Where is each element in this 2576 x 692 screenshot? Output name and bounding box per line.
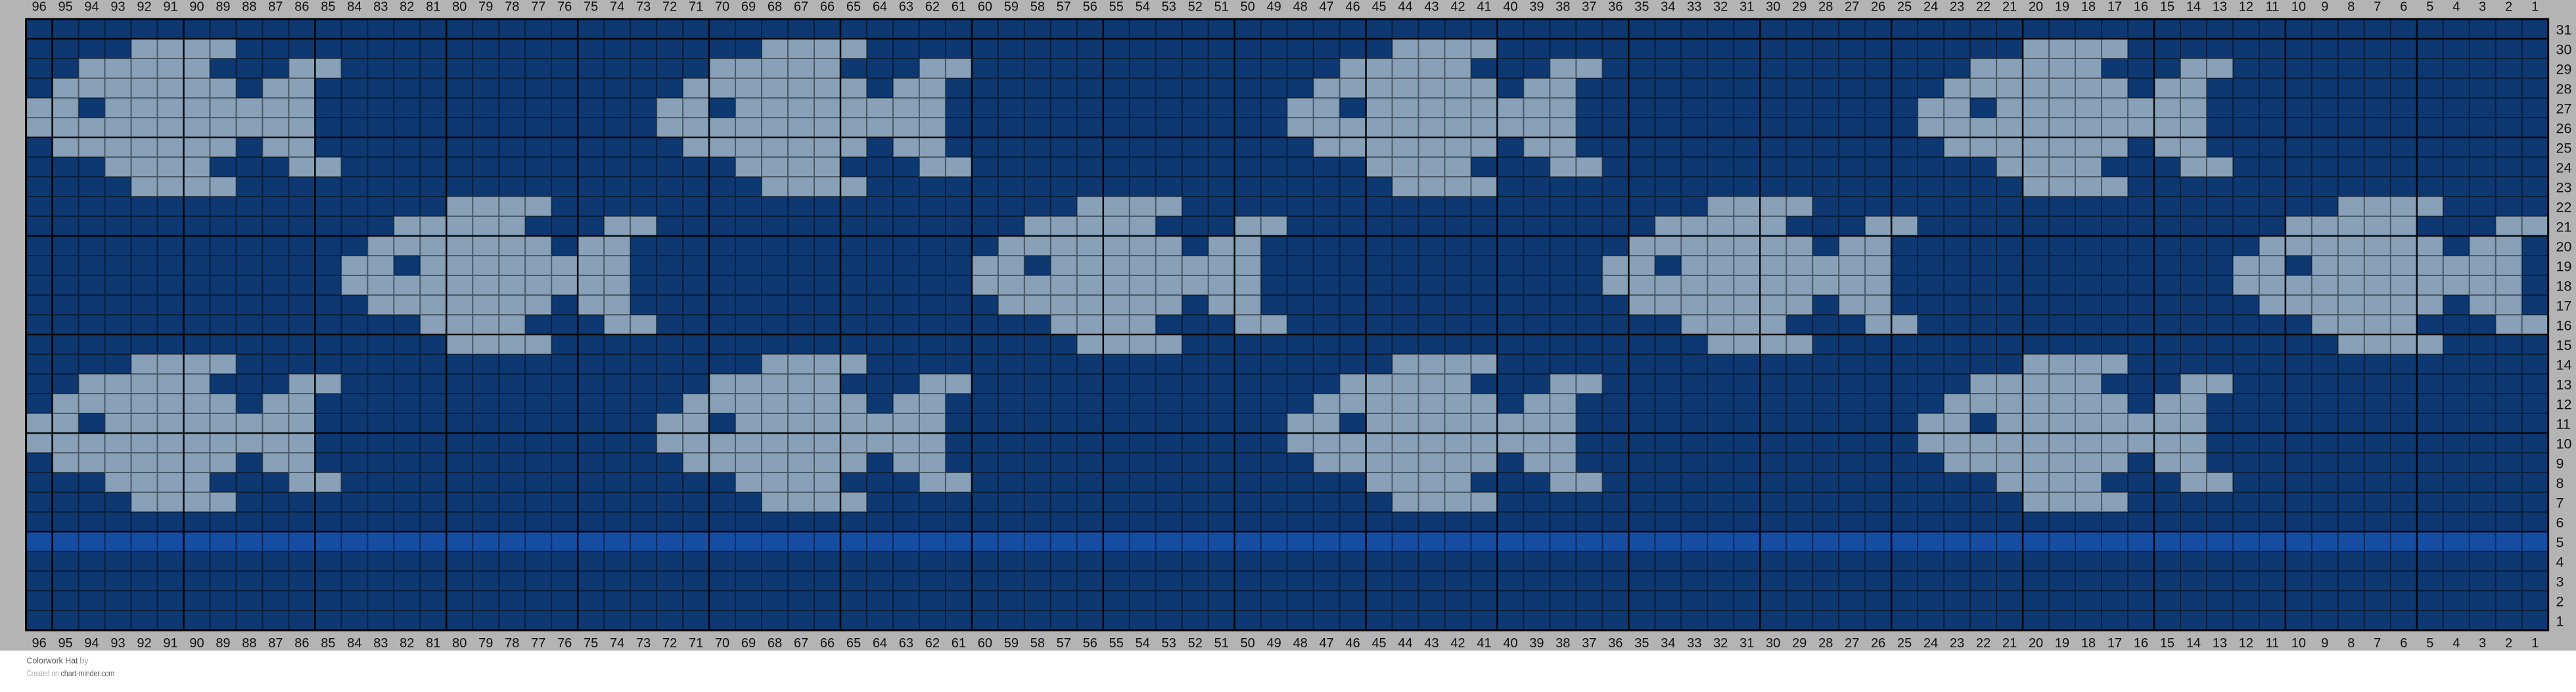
svg-text:33: 33 — [1687, 636, 1701, 651]
svg-text:28: 28 — [2556, 81, 2572, 97]
svg-text:56: 56 — [1083, 636, 1097, 651]
svg-text:59: 59 — [1004, 0, 1019, 14]
svg-text:42: 42 — [1450, 0, 1465, 14]
svg-text:22: 22 — [2556, 200, 2572, 216]
svg-text:39: 39 — [1529, 0, 1544, 14]
svg-text:69: 69 — [741, 636, 756, 651]
svg-text:22: 22 — [1976, 0, 1990, 14]
svg-text:85: 85 — [321, 636, 335, 651]
svg-text:Colorwork Hat: Colorwork Hat — [27, 656, 78, 665]
svg-text:81: 81 — [426, 636, 440, 651]
svg-text:78: 78 — [505, 636, 519, 651]
svg-text:29: 29 — [1792, 0, 1806, 14]
svg-text:24: 24 — [2556, 160, 2572, 176]
svg-text:12: 12 — [2556, 397, 2572, 413]
svg-text:17: 17 — [2107, 0, 2122, 14]
svg-text:21: 21 — [2002, 0, 2017, 14]
svg-text:22: 22 — [1976, 636, 1990, 651]
svg-text:51: 51 — [1214, 0, 1229, 14]
svg-text:19: 19 — [2055, 0, 2069, 14]
svg-text:28: 28 — [1818, 0, 1833, 14]
svg-text:51: 51 — [1214, 636, 1229, 651]
svg-text:55: 55 — [1109, 636, 1124, 651]
svg-text:75: 75 — [584, 0, 598, 14]
svg-text:12: 12 — [2239, 636, 2253, 651]
svg-text:82: 82 — [400, 636, 414, 651]
svg-text:34: 34 — [1661, 0, 1675, 14]
svg-text:61: 61 — [952, 0, 966, 14]
svg-text:9: 9 — [2321, 0, 2328, 14]
svg-text:23: 23 — [2556, 180, 2572, 196]
svg-text:6: 6 — [2556, 515, 2564, 531]
svg-text:35: 35 — [1634, 0, 1649, 14]
svg-text:1: 1 — [2556, 614, 2564, 630]
svg-text:50: 50 — [1241, 636, 1255, 651]
svg-text:18: 18 — [2081, 0, 2096, 14]
svg-text:40: 40 — [1503, 636, 1517, 651]
svg-text:43: 43 — [1424, 636, 1438, 651]
svg-text:7: 7 — [2374, 636, 2381, 651]
svg-text:35: 35 — [1634, 636, 1649, 651]
svg-text:64: 64 — [873, 636, 887, 651]
svg-text:92: 92 — [137, 636, 151, 651]
svg-text:93: 93 — [110, 0, 125, 14]
svg-text:14: 14 — [2186, 0, 2201, 14]
svg-text:15: 15 — [2160, 0, 2174, 14]
svg-text:57: 57 — [1057, 636, 1071, 651]
svg-text:16: 16 — [2556, 318, 2572, 334]
svg-text:Created on: Created on — [27, 669, 59, 678]
svg-text:93: 93 — [110, 636, 125, 651]
svg-text:38: 38 — [1555, 636, 1570, 651]
svg-text:27: 27 — [2556, 101, 2572, 117]
svg-text:76: 76 — [557, 0, 572, 14]
svg-text:21: 21 — [2002, 636, 2017, 651]
svg-text:11: 11 — [2266, 636, 2280, 651]
svg-text:26: 26 — [1871, 636, 1885, 651]
svg-text:46: 46 — [1345, 636, 1360, 651]
svg-text:66: 66 — [820, 636, 835, 651]
svg-text:8: 8 — [2347, 636, 2355, 651]
svg-text:13: 13 — [2213, 0, 2227, 14]
svg-text:26: 26 — [1871, 0, 1885, 14]
svg-text:48: 48 — [1293, 0, 1308, 14]
svg-text:52: 52 — [1188, 0, 1203, 14]
svg-text:87: 87 — [268, 636, 283, 651]
svg-text:10: 10 — [2556, 436, 2572, 452]
svg-text:7: 7 — [2374, 0, 2381, 14]
svg-text:11: 11 — [2556, 417, 2571, 432]
svg-text:49: 49 — [1267, 0, 1281, 14]
svg-text:25: 25 — [2556, 141, 2572, 156]
svg-text:18: 18 — [2556, 279, 2572, 294]
svg-text:49: 49 — [1267, 636, 1281, 651]
svg-text:21: 21 — [2556, 219, 2572, 235]
svg-text:9: 9 — [2321, 636, 2328, 651]
svg-text:54: 54 — [1136, 0, 1150, 14]
svg-text:59: 59 — [1004, 636, 1019, 651]
svg-text:14: 14 — [2186, 636, 2201, 651]
svg-text:23: 23 — [1950, 636, 1964, 651]
svg-text:80: 80 — [452, 0, 467, 14]
svg-text:84: 84 — [347, 636, 361, 651]
svg-text:6: 6 — [2400, 0, 2407, 14]
svg-text:2: 2 — [2505, 636, 2512, 651]
svg-text:5: 5 — [2556, 535, 2564, 551]
svg-text:30: 30 — [2556, 42, 2572, 58]
svg-text:71: 71 — [689, 636, 703, 651]
svg-text:36: 36 — [1608, 0, 1622, 14]
svg-text:73: 73 — [636, 0, 651, 14]
svg-text:1: 1 — [2531, 636, 2539, 651]
svg-text:94: 94 — [84, 636, 99, 651]
svg-text:8: 8 — [2347, 0, 2355, 14]
svg-text:43: 43 — [1424, 0, 1438, 14]
svg-text:30: 30 — [1766, 0, 1780, 14]
svg-text:2: 2 — [2505, 0, 2512, 14]
svg-text:79: 79 — [478, 636, 493, 651]
svg-text:23: 23 — [1950, 0, 1964, 14]
svg-text:30: 30 — [1766, 636, 1780, 651]
svg-text:46: 46 — [1345, 0, 1360, 14]
svg-text:62: 62 — [925, 636, 940, 651]
svg-text:44: 44 — [1398, 636, 1412, 651]
svg-text:74: 74 — [610, 0, 624, 14]
svg-text:20: 20 — [2029, 0, 2043, 14]
svg-text:87: 87 — [268, 0, 283, 14]
svg-text:25: 25 — [1897, 0, 1912, 14]
svg-text:42: 42 — [1450, 636, 1465, 651]
svg-text:3: 3 — [2479, 636, 2486, 651]
svg-text:83: 83 — [373, 636, 388, 651]
svg-text:73: 73 — [636, 636, 651, 651]
svg-text:47: 47 — [1319, 0, 1333, 14]
svg-text:91: 91 — [163, 636, 177, 651]
svg-text:55: 55 — [1109, 0, 1124, 14]
svg-text:76: 76 — [557, 636, 572, 651]
svg-text:67: 67 — [794, 0, 808, 14]
svg-text:68: 68 — [768, 0, 782, 14]
svg-text:18: 18 — [2081, 636, 2096, 651]
svg-text:86: 86 — [294, 0, 309, 14]
svg-text:96: 96 — [32, 0, 46, 14]
svg-text:89: 89 — [216, 636, 230, 651]
svg-text:17: 17 — [2107, 636, 2122, 651]
svg-text:19: 19 — [2055, 636, 2069, 651]
svg-text:75: 75 — [584, 636, 598, 651]
svg-text:7: 7 — [2556, 496, 2564, 511]
svg-text:12: 12 — [2239, 0, 2253, 14]
svg-text:84: 84 — [347, 0, 361, 14]
svg-text:45: 45 — [1371, 636, 1386, 651]
svg-text:37: 37 — [1582, 0, 1596, 14]
svg-text:89: 89 — [216, 0, 230, 14]
svg-text:10: 10 — [2291, 636, 2306, 651]
svg-text:81: 81 — [426, 0, 440, 14]
svg-text:79: 79 — [478, 0, 493, 14]
svg-text:77: 77 — [531, 636, 545, 651]
svg-text:11: 11 — [2266, 0, 2280, 14]
svg-text:29: 29 — [2556, 62, 2572, 78]
svg-text:20: 20 — [2556, 239, 2572, 255]
svg-text:36: 36 — [1608, 636, 1622, 651]
svg-text:8: 8 — [2556, 476, 2564, 492]
svg-text:32: 32 — [1713, 0, 1728, 14]
svg-text:45: 45 — [1371, 0, 1386, 14]
svg-text:88: 88 — [242, 0, 256, 14]
svg-text:66: 66 — [820, 0, 835, 14]
svg-text:72: 72 — [662, 0, 677, 14]
svg-text:2: 2 — [2556, 594, 2564, 610]
svg-text:78: 78 — [505, 0, 519, 14]
svg-text:13: 13 — [2213, 636, 2227, 651]
svg-text:9: 9 — [2556, 456, 2564, 472]
svg-text:74: 74 — [610, 636, 624, 651]
svg-text:48: 48 — [1293, 636, 1308, 651]
svg-text:34: 34 — [1661, 636, 1675, 651]
svg-text:72: 72 — [662, 636, 677, 651]
svg-text:71: 71 — [689, 0, 703, 14]
svg-text:58: 58 — [1030, 636, 1045, 651]
svg-text:95: 95 — [58, 636, 72, 651]
svg-text:65: 65 — [846, 636, 861, 651]
svg-text:10: 10 — [2291, 0, 2306, 14]
svg-text:60: 60 — [978, 636, 992, 651]
svg-text:65: 65 — [846, 0, 861, 14]
svg-text:63: 63 — [899, 0, 913, 14]
svg-text:53: 53 — [1162, 636, 1176, 651]
svg-text:77: 77 — [531, 0, 545, 14]
svg-text:4: 4 — [2452, 636, 2460, 651]
svg-text:63: 63 — [899, 636, 913, 651]
svg-text:96: 96 — [32, 636, 46, 651]
svg-text:41: 41 — [1477, 0, 1491, 14]
svg-text:64: 64 — [873, 0, 887, 14]
svg-text:60: 60 — [978, 0, 992, 14]
svg-text:15: 15 — [2160, 636, 2174, 651]
svg-text:83: 83 — [373, 0, 388, 14]
svg-text:4: 4 — [2452, 0, 2460, 14]
svg-text:58: 58 — [1030, 0, 1045, 14]
svg-text:by: by — [80, 656, 89, 665]
svg-text:28: 28 — [1818, 636, 1833, 651]
svg-text:17: 17 — [2556, 298, 2572, 314]
svg-text:70: 70 — [715, 0, 729, 14]
svg-text:68: 68 — [768, 636, 782, 651]
svg-text:6: 6 — [2400, 636, 2407, 651]
svg-text:50: 50 — [1241, 0, 1255, 14]
svg-text:88: 88 — [242, 636, 256, 651]
svg-text:4: 4 — [2556, 555, 2564, 570]
svg-text:25: 25 — [1897, 636, 1912, 651]
svg-text:44: 44 — [1398, 0, 1412, 14]
svg-text:chart-minder.com: chart-minder.com — [61, 669, 115, 678]
svg-text:20: 20 — [2029, 636, 2043, 651]
svg-text:94: 94 — [84, 0, 99, 14]
svg-text:5: 5 — [2426, 636, 2433, 651]
svg-text:62: 62 — [925, 0, 940, 14]
svg-text:92: 92 — [137, 0, 151, 14]
svg-text:82: 82 — [400, 0, 414, 14]
svg-text:27: 27 — [1845, 0, 1859, 14]
svg-text:90: 90 — [189, 0, 204, 14]
svg-text:14: 14 — [2556, 358, 2572, 373]
svg-text:85: 85 — [321, 0, 335, 14]
svg-text:53: 53 — [1162, 0, 1176, 14]
svg-text:67: 67 — [794, 636, 808, 651]
svg-text:37: 37 — [1582, 636, 1596, 651]
svg-text:32: 32 — [1713, 636, 1728, 651]
svg-text:47: 47 — [1319, 636, 1333, 651]
svg-text:26: 26 — [2556, 121, 2572, 137]
svg-text:5: 5 — [2426, 0, 2433, 14]
svg-text:52: 52 — [1188, 636, 1203, 651]
svg-text:31: 31 — [1739, 636, 1754, 651]
svg-text:29: 29 — [1792, 636, 1806, 651]
svg-text:24: 24 — [1923, 636, 1938, 651]
svg-text:1: 1 — [2531, 0, 2539, 14]
svg-text:80: 80 — [452, 636, 467, 651]
svg-text:38: 38 — [1555, 0, 1570, 14]
svg-text:3: 3 — [2556, 574, 2564, 590]
svg-text:3: 3 — [2479, 0, 2486, 14]
svg-text:39: 39 — [1529, 636, 1544, 651]
svg-text:33: 33 — [1687, 0, 1701, 14]
svg-text:91: 91 — [163, 0, 177, 14]
svg-text:16: 16 — [2134, 0, 2148, 14]
svg-text:27: 27 — [1845, 636, 1859, 651]
svg-text:90: 90 — [189, 636, 204, 651]
svg-text:40: 40 — [1503, 0, 1517, 14]
svg-text:24: 24 — [1923, 0, 1938, 14]
svg-text:15: 15 — [2556, 338, 2572, 354]
svg-text:95: 95 — [58, 0, 72, 14]
svg-text:70: 70 — [715, 636, 729, 651]
svg-text:16: 16 — [2134, 636, 2148, 651]
svg-text:13: 13 — [2556, 377, 2572, 393]
svg-text:57: 57 — [1057, 0, 1071, 14]
svg-text:31: 31 — [1739, 0, 1754, 14]
svg-text:86: 86 — [294, 636, 309, 651]
svg-text:31: 31 — [2556, 22, 2572, 38]
svg-text:41: 41 — [1477, 636, 1491, 651]
svg-text:56: 56 — [1083, 0, 1097, 14]
svg-text:69: 69 — [741, 0, 756, 14]
svg-text:19: 19 — [2556, 259, 2572, 275]
svg-text:61: 61 — [952, 636, 966, 651]
svg-text:54: 54 — [1136, 636, 1150, 651]
